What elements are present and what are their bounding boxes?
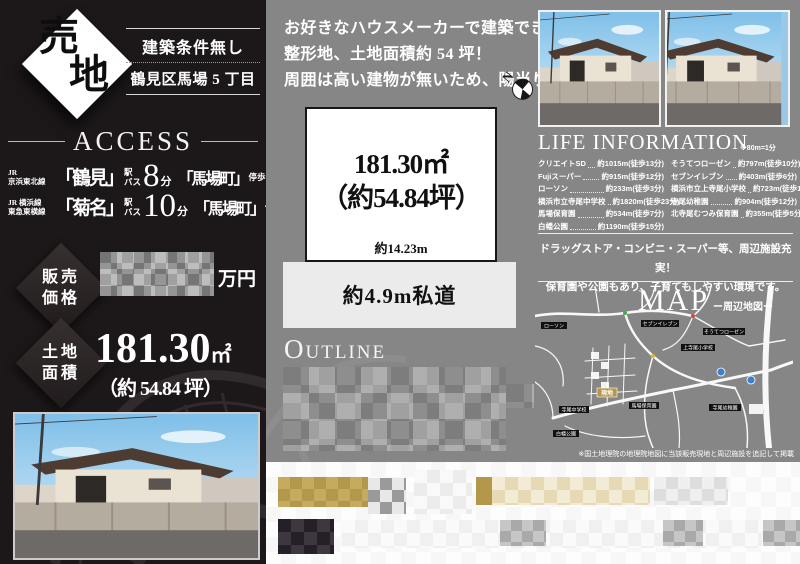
svg-text:寺尾中学校: 寺尾中学校 xyxy=(561,406,586,413)
map-label: そうてつローゼン xyxy=(703,328,745,335)
sale-badge: 売 地 xyxy=(22,8,132,120)
divider xyxy=(538,281,793,282)
private-road-strip: 約4.9m私道 xyxy=(283,262,516,328)
footer-redacted-logo-2 xyxy=(278,519,334,554)
condition-box: 建築条件無し 鶴見区馬場 5 丁目 xyxy=(126,28,260,95)
svg-text:N: N xyxy=(499,68,517,85)
svg-text:現地: 現地 xyxy=(601,389,613,397)
svg-text:寺尾幼稚園: 寺尾幼稚園 xyxy=(712,404,737,411)
footer-company-area xyxy=(266,462,800,564)
list-item: クリエイトSD約1015m(徒歩13分) xyxy=(538,158,664,171)
outline-redacted-mosaic xyxy=(506,384,534,408)
access-title: ACCESS xyxy=(0,126,266,157)
land-area-unit: ㎡ xyxy=(211,343,232,367)
life-information-title: LIFE INFORMATION xyxy=(538,130,748,155)
land-area-value: 181.30㎡ xyxy=(95,328,232,370)
land-area-tsubo: （約 54.84 坪） xyxy=(98,372,222,401)
property-photo-main xyxy=(13,412,260,560)
svg-text:上寺尾小学校: 上寺尾小学校 xyxy=(683,344,713,351)
bus-stop-name: 「馬場町」 xyxy=(178,165,248,189)
footer-redacted-logo xyxy=(278,477,368,507)
plot-frontage: 約14.23m xyxy=(307,238,495,257)
list-item: 馬場保育園約534m(徒歩7分) xyxy=(538,208,664,221)
station-name: 「菊名」 xyxy=(55,193,123,220)
list-item: そうてつローゼン約797m(徒歩10分) xyxy=(671,158,797,171)
map-label: ローソン xyxy=(541,322,567,329)
footer-redacted-block xyxy=(476,477,492,505)
map-label: 白幡公園 xyxy=(553,430,579,437)
list-item: ローソン約233m(徒歩3分) xyxy=(538,183,664,196)
access-row-kikuna: JR 横浜線東急東横線 「菊名」 駅バス 10 分 「馬場町」 停歩 3 分 xyxy=(8,190,264,223)
footer-redacted-company-name xyxy=(492,477,650,505)
svg-text:馬場保育園: 馬場保育園 xyxy=(631,402,656,409)
footer-redacted-block xyxy=(654,477,728,505)
property-photo-2 xyxy=(665,10,790,127)
rail-line-name: JR 横浜線東急東横線 xyxy=(8,198,55,216)
footer-redacted-block xyxy=(500,520,546,546)
map-label: 寺尾中学校 xyxy=(559,406,589,413)
list-item: 寺尾幼稚園約904m(徒歩12分) xyxy=(671,196,797,209)
station-mode: 駅バス xyxy=(124,197,141,217)
divider xyxy=(538,233,793,234)
map-station-marker xyxy=(747,376,755,384)
walk-conversion-note: ※80m=1分 xyxy=(740,143,776,153)
outline-title: OUTLINE xyxy=(284,334,386,365)
land-plot-diagram: 181.30㎡ （約54.84坪） 約14.23m xyxy=(305,107,497,262)
stop-walk-label: 停歩 xyxy=(249,171,266,183)
footer-redacted-block xyxy=(663,520,703,546)
life-info-column-1: クリエイトSD約1015m(徒歩13分) Fujiスーパー約915m(徒歩12分… xyxy=(538,158,664,233)
area-label-diamond: 土地面積 xyxy=(16,318,106,408)
area-label: 土地面積 xyxy=(16,318,106,408)
divider xyxy=(126,94,260,95)
list-item: Fujiスーパー約915m(徒歩12分) xyxy=(538,171,664,184)
map-signal-dot xyxy=(651,354,655,358)
flyer-page: 売 地 建築条件無し 鶴見区馬場 5 丁目 ACCESS JR京浜東北線 「鶴見… xyxy=(0,0,800,564)
minutes-unit: 分 xyxy=(161,173,172,189)
map-label: 上寺尾小学校 xyxy=(681,344,715,351)
svg-text:ローソン: ローソン xyxy=(544,323,564,329)
left-panel: 売 地 建築条件無し 鶴見区馬場 5 丁目 ACCESS JR京浜東北線 「鶴見… xyxy=(0,0,266,564)
svg-text:セブンイレブン: セブンイレブン xyxy=(642,320,677,327)
bus-minutes: 10 xyxy=(143,190,176,223)
station-name: 「鶴見」 xyxy=(55,163,123,190)
minutes-unit: 分 xyxy=(177,203,188,219)
building-condition: 建築条件無し xyxy=(126,29,260,62)
list-item: セブンイレブン約403m(徒歩6分) xyxy=(671,171,797,184)
list-item: 北寺尾むつみ保育園約355m(徒歩5分) xyxy=(671,208,797,221)
sale-badge-char-1: 売 xyxy=(39,17,79,57)
map-label: 寺尾幼稚園 xyxy=(709,404,741,411)
life-information-list: クリエイトSD約1015m(徒歩13分) Fujiスーパー約915m(徒歩12分… xyxy=(538,158,794,233)
property-location: 鶴見区馬場 5 丁目 xyxy=(126,63,260,94)
price-redacted-mosaic xyxy=(100,252,214,296)
map-title: MAP ー周辺地図ー xyxy=(638,284,773,318)
footer-redacted-mark xyxy=(368,478,406,514)
svg-text:そうてつローゼン: そうてつローゼン xyxy=(704,328,744,335)
station-mode: 駅バス xyxy=(124,167,141,187)
map-disclaimer: ※国土地理院の地理院地図に当該販売現地と周辺施設を追記して掲載 xyxy=(538,449,794,459)
list-item: 横浜市立寺尾中学校約1820m(徒歩23分) xyxy=(538,196,664,209)
price-unit: 万円 xyxy=(218,264,256,291)
list-item: 横浜市立上寺尾小学校約723m(徒歩10分) xyxy=(671,183,797,196)
svg-text:白幡公園: 白幡公園 xyxy=(556,430,576,437)
map-signal-dot xyxy=(623,311,627,315)
property-photo-1 xyxy=(538,10,661,127)
life-info-column-2: そうてつローゼン約797m(徒歩10分) セブンイレブン約403m(徒歩6分) … xyxy=(671,158,797,233)
footer-redacted-block xyxy=(414,470,472,514)
map-label: セブンイレブン xyxy=(641,320,679,327)
footer-redacted-block xyxy=(763,520,800,546)
map-station-marker xyxy=(717,368,725,376)
bus-stop-name: 「馬場町」 xyxy=(194,195,264,219)
map-site-label: 現地 xyxy=(597,388,617,397)
access-row-tsurumi: JR京浜東北線 「鶴見」 駅バス 8 分 「馬場町」 停歩 3 分 xyxy=(8,160,264,193)
rail-line-name: JR京浜東北線 xyxy=(8,168,55,186)
sale-badge-char-2: 地 xyxy=(69,55,109,95)
map-label: 馬場保育園 xyxy=(629,402,659,409)
plot-area-text: 181.30㎡ （約54.84坪） xyxy=(307,147,495,215)
outline-redacted-mosaic xyxy=(283,367,506,451)
list-item: 白幡公園約1190m(徒歩15分) xyxy=(538,221,664,234)
north-compass-icon: N xyxy=(497,64,539,106)
